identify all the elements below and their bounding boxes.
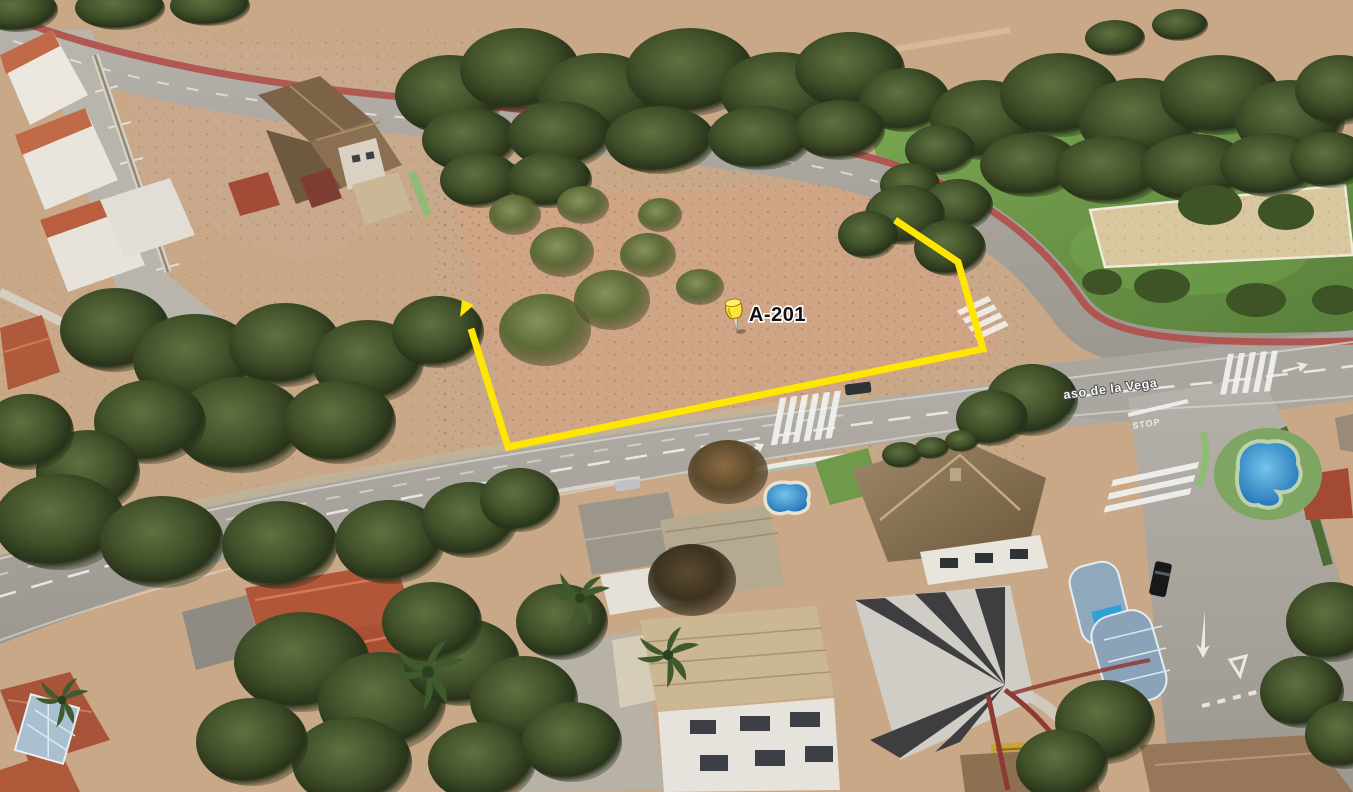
parcel-label: A-201 bbox=[749, 304, 806, 326]
satellite-imagery: STOP bbox=[0, 0, 1353, 792]
small-kidney-pool bbox=[765, 482, 809, 513]
copper-tree bbox=[688, 440, 768, 504]
dark-tree bbox=[648, 544, 736, 616]
aerial-map-view[interactable]: STOP bbox=[0, 0, 1353, 792]
